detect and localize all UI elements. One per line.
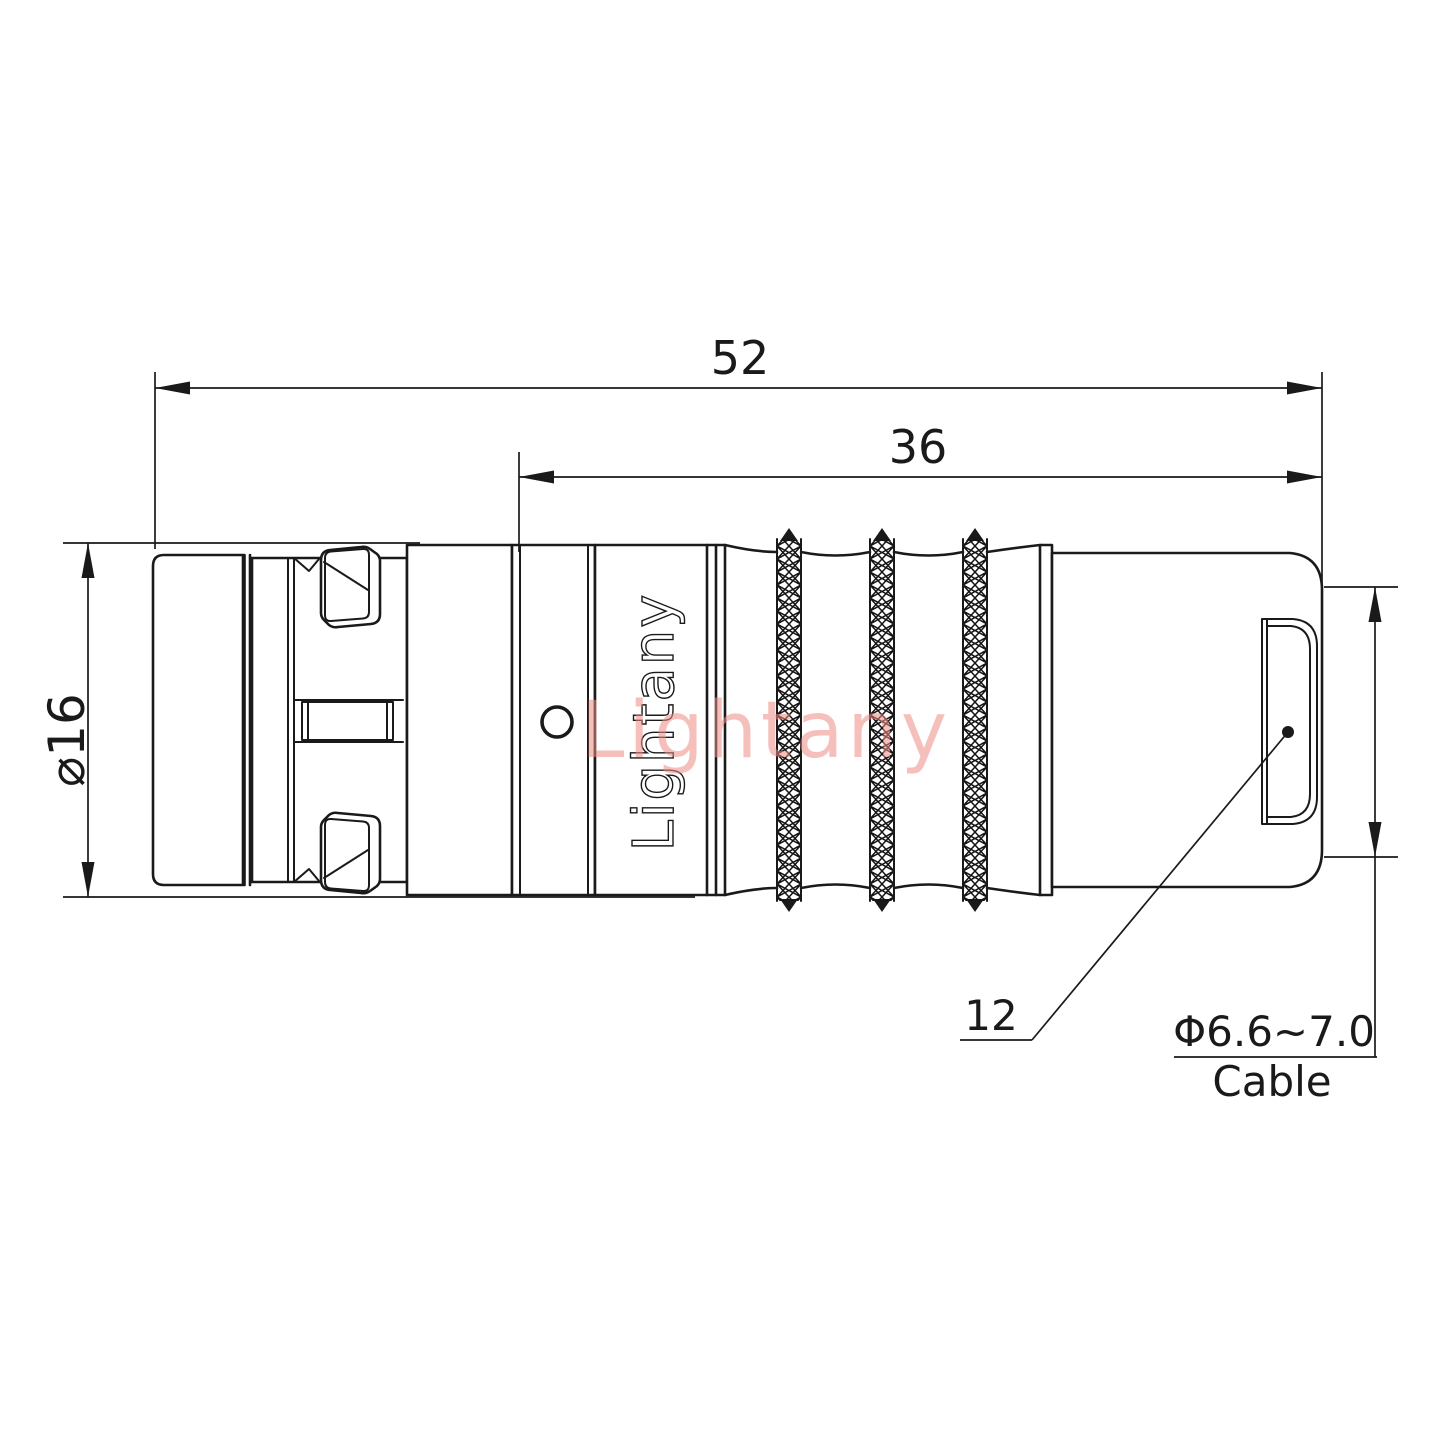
callout-backnut-value: 12 (964, 991, 1017, 1040)
callout-cable-label: Cable (1212, 1057, 1331, 1106)
separator-band (245, 555, 251, 885)
rear-barrel (1052, 553, 1322, 887)
leader-dot (1282, 726, 1294, 738)
cable-entry-recess (1262, 619, 1317, 824)
dim-body-diameter-value: ⌀16 (38, 693, 96, 787)
callout-cable-range: Φ6.6~7.0 (1173, 1007, 1375, 1056)
latch-slot-window (302, 702, 393, 740)
vent-hole (542, 707, 572, 737)
connector-technical-drawing: Lightany (0, 0, 1440, 1440)
dim-rear-length-value: 36 (889, 420, 948, 474)
rear-collar (1040, 545, 1052, 895)
brand-watermark: Lightany (581, 686, 951, 776)
front-cap (153, 555, 243, 885)
technical-drawing-page: Lightany (0, 0, 1440, 1440)
dim-rear-length: 36 (519, 420, 1322, 552)
barrel-section (407, 545, 512, 895)
latch-housing (252, 547, 407, 894)
dim-overall-length-value: 52 (711, 331, 770, 385)
knurl-band-3 (963, 528, 987, 912)
